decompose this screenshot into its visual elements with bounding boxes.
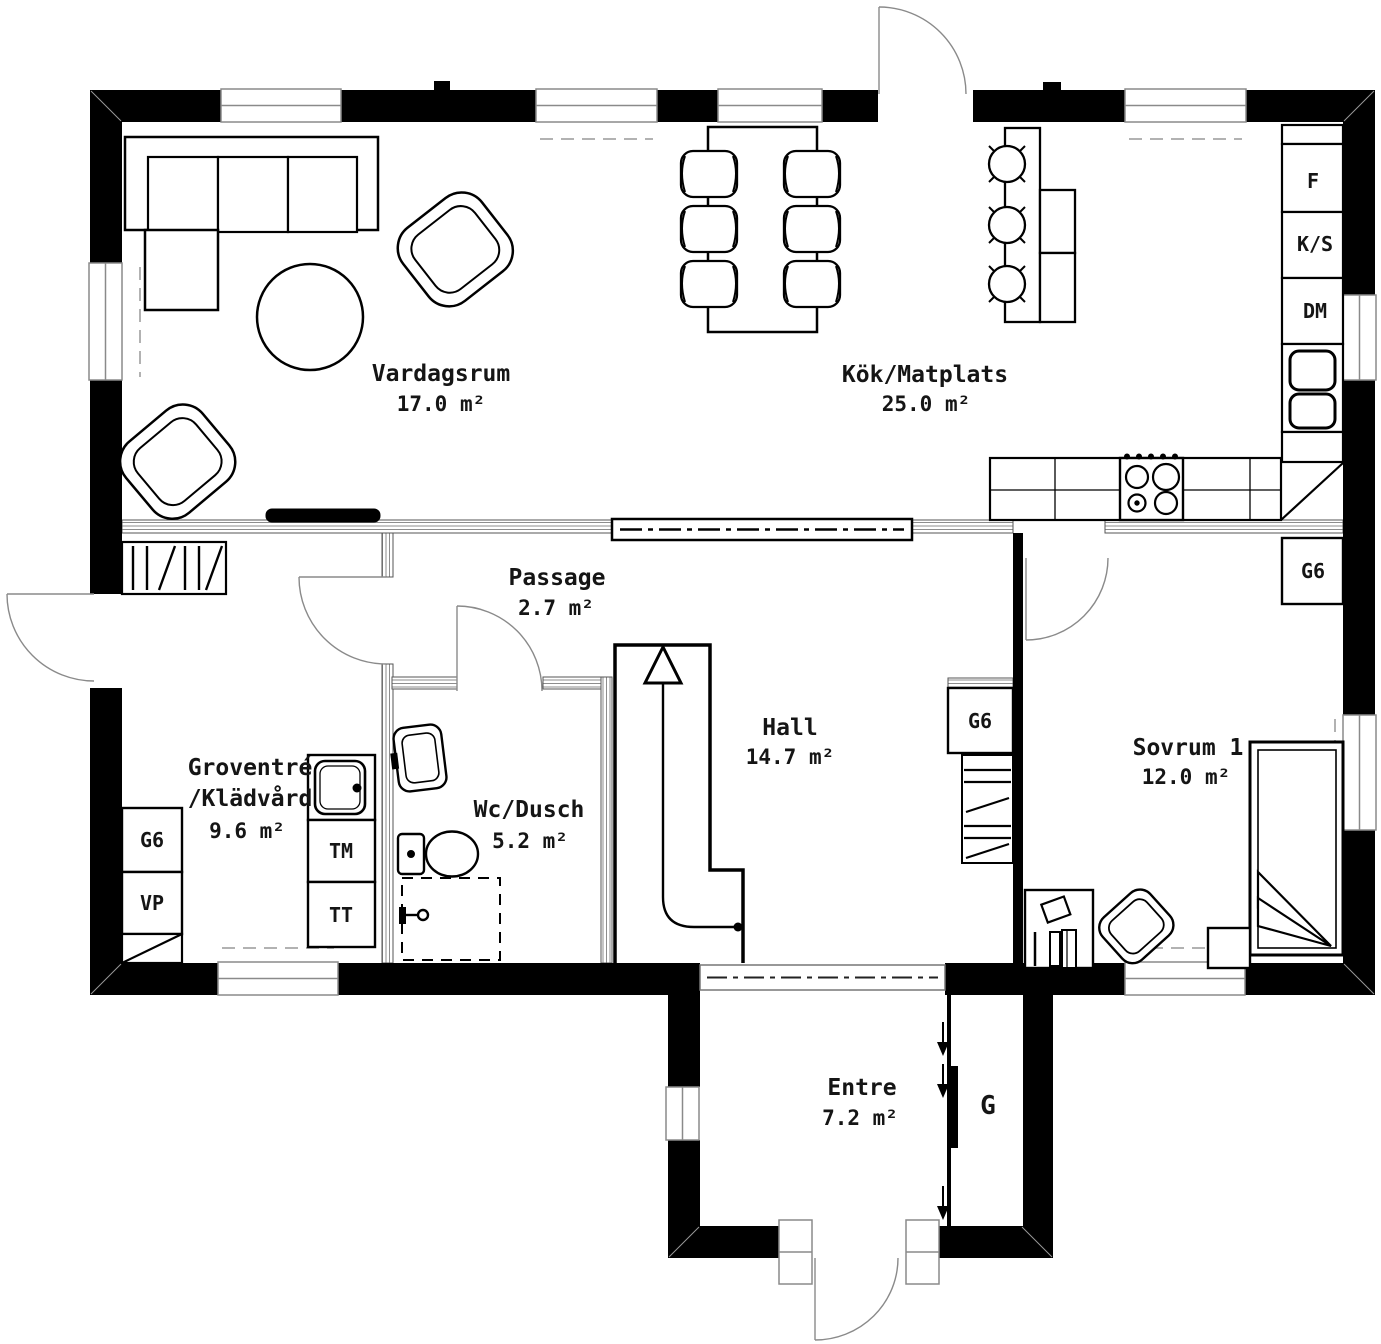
code-washing-machine: TM [329,839,353,863]
dining-chair [784,151,840,197]
code-wardrobe-groventre: G6 [140,828,164,852]
bar-stool [989,266,1025,302]
armchair [109,394,245,530]
bed [1250,742,1343,955]
wall-tab [434,81,450,91]
staircase [615,645,743,963]
hall-entre-opening [700,965,945,990]
counter-corner-diagonal [1281,463,1343,520]
code-closet-g: G [980,1091,996,1121]
dining-set [681,127,840,332]
door-sovrum [1026,558,1108,640]
desk-chair [1093,884,1179,969]
window [221,89,341,122]
room-label-groventre-line1: Groventré [188,755,313,781]
room-area-entre: 7.2 m² [822,1106,898,1130]
room-label-groventre-line2: /Klädvård [188,786,313,812]
bar-stool [989,207,1025,243]
room-area-passage: 2.7 m² [518,596,594,620]
bar-stool [989,146,1025,182]
dining-chair [784,261,840,307]
closet-partition [947,995,951,1226]
door-groventre [299,577,386,664]
room-area-kok: 25.0 m² [882,392,971,416]
door-sidelight [906,1220,939,1284]
tv-bench [266,509,380,522]
toilet [398,832,478,877]
window [666,1087,699,1140]
room-label-passage: Passage [509,565,606,591]
dining-chair [681,261,737,307]
window [1125,89,1246,122]
dining-chair [681,206,737,252]
code-dishwasher: DM [1303,299,1327,323]
coat-rack [122,542,226,594]
laundry-sink [308,755,375,820]
door-front [815,1258,898,1340]
wall-tab [1043,82,1061,91]
kitchen-fixtures [989,125,1343,520]
room-area-vardagsrum: 17.0 m² [397,392,486,416]
room-label-hall: Hall [762,715,817,741]
coffee-table [257,264,363,370]
door-top-exterior [879,7,966,94]
room-label-entre: Entre [827,1075,896,1101]
bathroom-fixtures [387,723,500,960]
armchair [387,182,523,317]
floor-plan-canvas [0,0,1381,1344]
room-area-groventre: 9.6 m² [209,819,285,843]
window [718,89,822,122]
code-fridge: F [1307,169,1319,193]
window [1343,715,1376,830]
window [536,89,657,122]
room-area-sovrum1: 12.0 m² [1142,765,1231,789]
door-sidelight [779,1220,812,1284]
dining-chair [784,206,840,252]
shower [399,878,500,960]
window [89,263,122,380]
floor-plan: Vardagsrum 17.0 m² Kök/Matplats 25.0 m² … [0,0,1381,1344]
dining-chair [681,151,737,197]
hanging-rail [962,755,1013,863]
room-label-wc-dusch: Wc/Dusch [474,797,585,823]
code-tumble-dryer: TT [329,903,353,927]
desk [1025,890,1093,968]
window [1343,295,1376,380]
beam-opening [612,519,912,540]
code-wardrobe-kitchen: G6 [1301,559,1325,583]
nightstand [1208,928,1250,968]
window [218,962,338,995]
sliding-door-leaf [951,1066,958,1148]
cooktop [1120,454,1183,520]
living-room-furniture [109,137,523,529]
code-freezer: K/S [1297,232,1333,256]
room-label-kok: Kök/Matplats [842,362,1008,388]
wash-basin [387,723,447,793]
bench [122,934,182,963]
code-wardrobe-hall: G6 [968,709,992,733]
room-label-sovrum1: Sovrum 1 [1133,735,1244,761]
room-area-hall: 14.7 m² [746,745,835,769]
room-area-wc-dusch: 5.2 m² [492,829,568,853]
door-left-exterior [7,594,94,681]
code-heat-pump: VP [140,891,164,915]
room-label-vardagsrum: Vardagsrum [372,361,510,387]
